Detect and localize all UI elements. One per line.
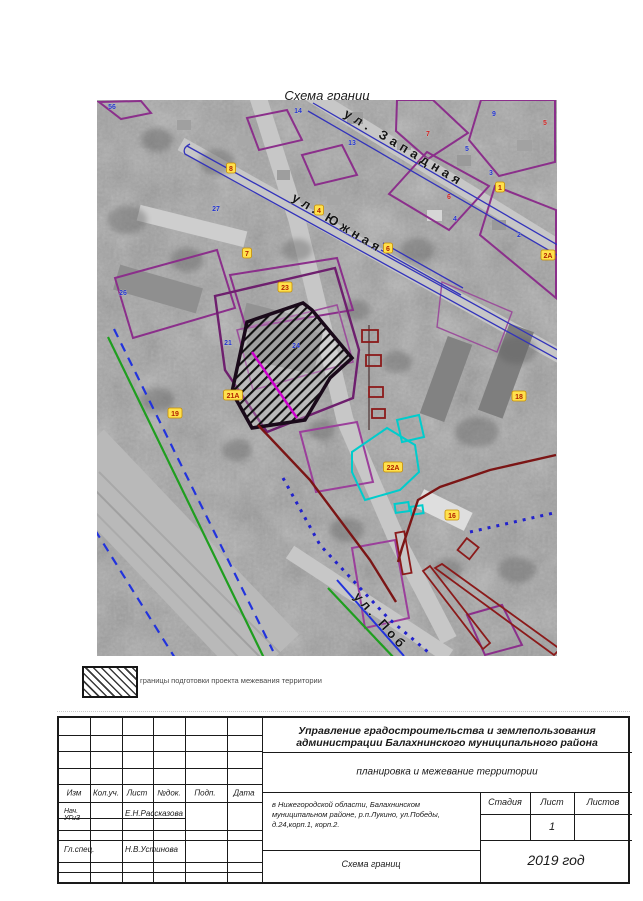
col-data: Дата: [233, 789, 254, 798]
svg-text:27: 27: [212, 206, 220, 213]
svg-text:19: 19: [171, 411, 179, 418]
legend-hatch-swatch: [82, 666, 138, 698]
svg-text:7: 7: [426, 131, 430, 138]
parcel-number-19: 19: [168, 408, 182, 418]
parcel-number-7: 7: [426, 131, 430, 138]
svg-text:22А: 22А: [387, 465, 400, 472]
parcel-number-1: 1: [496, 182, 505, 192]
parcel-number-13: 13: [348, 140, 356, 147]
map-area[interactable]: ул. Западнаяул. Южнаяул. Поб 56141395342…: [97, 100, 557, 656]
aerial-map: ул. Западнаяул. Южнаяул. Поб 56141395342…: [97, 100, 557, 656]
svg-text:13: 13: [348, 140, 356, 147]
svg-text:6: 6: [447, 194, 451, 201]
svg-text:16: 16: [448, 513, 456, 520]
year: 2019 год: [527, 852, 584, 868]
parcel-number-21: 21: [224, 340, 232, 347]
svg-text:7: 7: [245, 251, 249, 258]
svg-text:5: 5: [543, 120, 547, 127]
svg-text:9: 9: [492, 111, 496, 118]
org-name-line1: Управление градостроительства и землепол…: [298, 725, 595, 737]
parcel-number-5: 5: [465, 146, 469, 153]
parcel-number-5: 5: [543, 120, 547, 127]
svg-text:21А: 21А: [227, 393, 240, 400]
svg-text:14: 14: [294, 108, 302, 115]
col-koluch: Кол.уч.: [93, 789, 119, 798]
svg-text:2А: 2А: [544, 253, 553, 260]
svg-text:5: 5: [465, 146, 469, 153]
sig2-role: Гл.спец.: [64, 845, 94, 854]
svg-text:8: 8: [229, 166, 233, 173]
parcel-number-23: 23: [278, 282, 292, 292]
parcel-number-2А: 2А: [541, 250, 555, 260]
address-line2: муниципальном районе, р.п.Лукино, ул.Поб…: [272, 810, 440, 819]
project-subtitle: планировка и межевание территории: [356, 767, 537, 778]
parcel-number-16: 16: [445, 510, 459, 520]
parcel-number-18: 18: [512, 391, 526, 401]
sheet: Схема границ: [0, 0, 643, 901]
svg-text:2: 2: [517, 232, 521, 239]
svg-text:1: 1: [498, 185, 502, 192]
parcel-number-22А: 22А: [384, 462, 403, 472]
svg-text:3: 3: [489, 170, 493, 177]
col-dok: №док.: [157, 789, 181, 798]
col-izm: Изм: [67, 789, 82, 798]
svg-text:23: 23: [281, 285, 289, 292]
parcel-number-8: 8: [227, 163, 236, 173]
map-layers: ул. Западнаяул. Южнаяул. Поб 56141395342…: [97, 100, 557, 656]
svg-text:4: 4: [317, 208, 321, 215]
title-block: Управление градостроительства и землепол…: [57, 716, 630, 884]
parcel-number-26: 26: [119, 290, 127, 297]
separator-line: [57, 711, 630, 712]
sig1-role-line2: УГиЗ: [64, 815, 80, 822]
doc-name: Схема границ: [341, 859, 400, 869]
parcel-number-4: 4: [315, 205, 324, 215]
sig1-role-line1: Нач.: [64, 808, 78, 815]
sheet-label: Лист: [540, 797, 563, 807]
parcel-number-6: 6: [384, 243, 393, 253]
sheet-number: 1: [549, 821, 555, 833]
parcel-number-27: 27: [212, 206, 220, 213]
sig2-name: Н.В.Устинова: [125, 845, 178, 854]
svg-text:6: 6: [386, 246, 390, 253]
parcel-number-2: 2: [517, 232, 521, 239]
parcel-number-6: 6: [447, 194, 451, 201]
legend-label: границы подготовки проекта межевания тер…: [140, 676, 322, 685]
parcel-number-9: 9: [492, 111, 496, 118]
col-list: Лист: [127, 789, 148, 798]
svg-text:56: 56: [108, 104, 116, 111]
parcel-number-21А: 21А: [224, 390, 243, 400]
col-podp: Подп.: [194, 789, 215, 798]
svg-text:4: 4: [453, 216, 457, 223]
sig1-name: Е.Н.Рассказова: [125, 809, 183, 818]
svg-text:18: 18: [515, 394, 523, 401]
stage-label: Стадия: [488, 797, 522, 807]
parcel-number-14: 14: [294, 108, 302, 115]
parcel-number-4: 4: [453, 216, 457, 223]
svg-text:26: 26: [119, 290, 127, 297]
parcel-number-24: 24: [292, 343, 300, 350]
parcel-number-7: 7: [243, 248, 252, 258]
parcel-number-3: 3: [489, 170, 493, 177]
sheets-label: Листов: [587, 797, 620, 807]
org-name-line2: администрации Балахнинского муниципально…: [296, 737, 598, 749]
svg-text:21: 21: [224, 340, 232, 347]
parcel-number-56: 56: [108, 104, 116, 111]
svg-text:24: 24: [292, 343, 300, 350]
address-line3: д.24,корп.1, корп.2.: [272, 820, 339, 829]
address-line1: в Нижегородской области, Балахнинском: [272, 800, 420, 809]
